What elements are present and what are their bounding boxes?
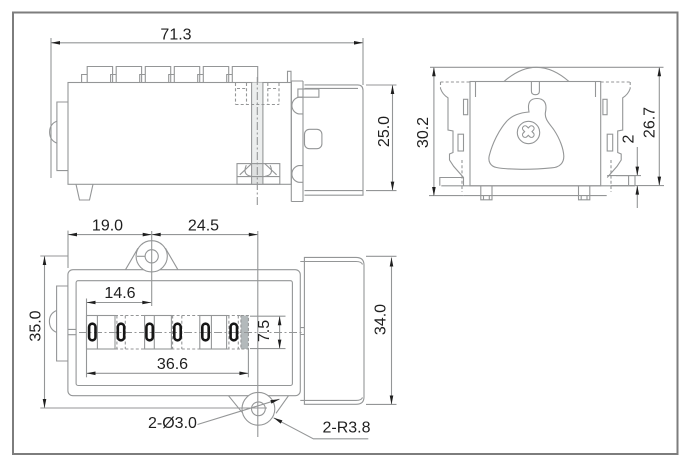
svg-text:2: 2	[621, 134, 638, 143]
svg-text:30.2: 30.2	[415, 117, 432, 148]
svg-text:36.6: 36.6	[157, 356, 188, 373]
svg-text:2-Ø3.0: 2-Ø3.0	[148, 415, 197, 432]
svg-text:26.7: 26.7	[642, 107, 659, 138]
svg-text:71.3: 71.3	[160, 27, 191, 44]
svg-text:14.6: 14.6	[104, 285, 135, 302]
svg-text:19.0: 19.0	[92, 218, 123, 235]
svg-text:34.0: 34.0	[373, 304, 390, 335]
svg-text:7.5: 7.5	[256, 320, 273, 342]
svg-text:2-R3.8: 2-R3.8	[323, 420, 371, 437]
svg-text:24.5: 24.5	[188, 218, 219, 235]
svg-text:25.0: 25.0	[376, 116, 393, 147]
svg-text:35.0: 35.0	[27, 310, 44, 341]
